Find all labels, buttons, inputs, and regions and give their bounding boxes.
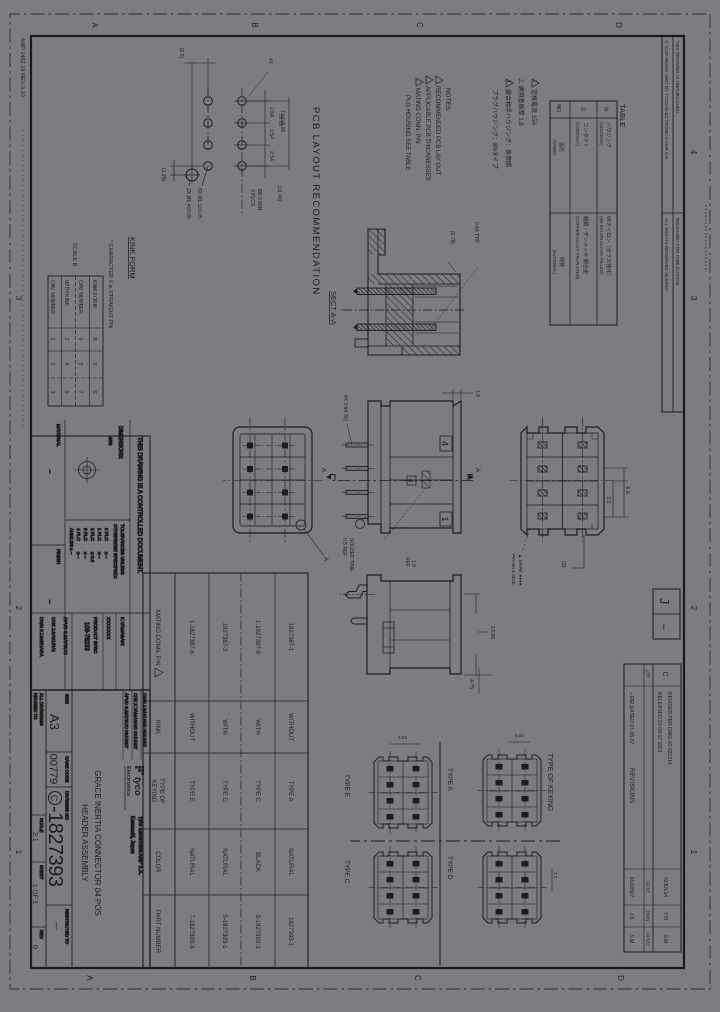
svg-text:TYPE D: TYPE D bbox=[221, 780, 227, 802]
svg-text:Ⓒ COPYRIGHT 2007 BY TYCO ELECT: Ⓒ COPYRIGHT 2007 BY TYCO ELECTRONICS AMP… bbox=[663, 40, 670, 161]
svg-text:6.0: 6.0 bbox=[624, 486, 630, 493]
svg-text:BLACK: BLACK bbox=[254, 852, 260, 872]
svg-text:①: ① bbox=[579, 106, 586, 111]
svg-text:MATERIAL: MATERIAL bbox=[56, 424, 61, 447]
svg-text:8X Ø1.1±0.05: 8X Ø1.1±0.05 bbox=[196, 188, 202, 219]
svg-text:2. 適用基板厚 1.6: 2. 適用基板厚 1.6 bbox=[517, 79, 525, 126]
svg-text:3: 3 bbox=[14, 296, 23, 301]
svg-text:材質: 材質 bbox=[558, 257, 565, 267]
svg-text:MATING CONN. P/N: MATING CONN. P/N bbox=[154, 610, 160, 666]
svg-text:APVD: APVD bbox=[646, 933, 651, 946]
svg-text:KEYING: KEYING bbox=[150, 780, 156, 803]
svg-text:* CHARACTER X is STRAIGHT PIN: * CHARACTER X is STRAIGHT PIN bbox=[107, 240, 113, 329]
svg-text:WITH: WITH bbox=[254, 719, 260, 734]
svg-text:RESTRICTED TO: RESTRICTED TO bbox=[65, 909, 70, 945]
svg-text:SECT A-A: SECT A-A bbox=[329, 291, 338, 325]
svg-text:7.62±0.05: 7.62±0.05 bbox=[279, 110, 285, 132]
svg-text:1: 1 bbox=[14, 850, 23, 855]
svg-text:HEADER ASSEMBLY: HEADER ASSEMBLY bbox=[80, 804, 89, 882]
svg-text:± –: ± – bbox=[83, 552, 88, 559]
svg-text:1: 1 bbox=[440, 516, 450, 521]
svg-text:108-78233: 108-78233 bbox=[83, 622, 89, 651]
svg-text:7-1827393-3: 7-1827393-3 bbox=[188, 914, 194, 949]
svg-text:–: – bbox=[658, 624, 670, 631]
svg-text:6: 6 bbox=[77, 338, 83, 341]
svg-text:5: 5 bbox=[77, 363, 83, 366]
svg-text:TYPE A: TYPE A bbox=[287, 780, 293, 801]
svg-text:OTHERWISE SPECIFIED:: OTHERWISE SPECIFIED: bbox=[113, 524, 118, 579]
svg-text:0.5 REF: 0.5 REF bbox=[341, 538, 347, 556]
svg-text:A: A bbox=[320, 468, 327, 473]
svg-text:± –: ± – bbox=[76, 552, 81, 559]
svg-text:SOLDER TINE: SOLDER TINE bbox=[348, 538, 354, 572]
svg-text:1-1827387-6: 1-1827387-6 bbox=[188, 620, 194, 655]
svg-text:1827387-3: 1827387-3 bbox=[221, 623, 227, 652]
svg-text:4X: 4X bbox=[267, 58, 273, 65]
svg-text:4: 4 bbox=[440, 441, 450, 446]
svg-text:—: — bbox=[52, 922, 61, 930]
svg-text:± –: ± – bbox=[97, 552, 102, 559]
svg-text:2.54: 2.54 bbox=[398, 735, 407, 740]
svg-text:TABLE: TABLE bbox=[618, 104, 627, 127]
svg-text:TYPE D: TYPE D bbox=[446, 856, 453, 880]
svg-text:PIN No.1 SIDE: PIN No.1 SIDE bbox=[511, 554, 516, 585]
svg-text:3 PLC: 3 PLC bbox=[83, 528, 88, 541]
svg-text:CAV. NUMBER: CAV. NUMBER bbox=[49, 280, 55, 314]
svg-text:tyco: tyco bbox=[133, 777, 143, 796]
svg-text:REVISED PER DWG-07-021214: REVISED PER DWG-07-021214 bbox=[666, 692, 672, 765]
svg-text:(COPPER ALLOY, TIN PLATED): (COPPER ALLOY, TIN PLATED) bbox=[575, 216, 580, 280]
svg-text:2:1: 2:1 bbox=[31, 832, 38, 842]
svg-text:2: 2 bbox=[63, 338, 69, 341]
svg-text:(6/6 NYLON GLASS–FILLED): (6/6 NYLON GLASS–FILLED) bbox=[599, 216, 604, 275]
svg-text:KINK FORM: KINK FORM bbox=[91, 280, 97, 308]
svg-text:5: 5 bbox=[63, 391, 69, 394]
svg-text:ANGLES ± –: ANGLES ± – bbox=[69, 528, 74, 555]
svg-text:A: A bbox=[474, 468, 481, 473]
svg-text:3-1827393-3: 3-1827393-3 bbox=[254, 914, 260, 949]
svg-text:RELEASED 07-08-07 1501: RELEASED 07-08-07 1501 bbox=[656, 692, 662, 753]
svg-text:(1.25): (1.25) bbox=[160, 168, 166, 181]
svg-text:1 PLC: 1 PLC bbox=[97, 528, 102, 541]
svg-text:Kawasaki, Japan: Kawasaki, Japan bbox=[129, 816, 135, 854]
svg-text:THIS DRAWING IS UNPUBLISHED.: THIS DRAWING IS UNPUBLISHED. bbox=[675, 40, 680, 115]
svg-text:2: 2 bbox=[689, 606, 698, 611]
svg-text:2X Ø1.4±0.05: 2X Ø1.4±0.05 bbox=[185, 188, 191, 219]
svg-text:コンタクト: コンタクト bbox=[582, 122, 590, 148]
svg-text:LTR: LTR bbox=[646, 670, 651, 679]
svg-text:ALL DRAWINGS: ALL DRAWINGS bbox=[39, 693, 44, 726]
svg-text:APVD S.MATSUO 06JUN07: APVD S.MATSUO 06JUN07 bbox=[124, 693, 129, 749]
svg-text:–: – bbox=[46, 600, 52, 604]
svg-text:B: B bbox=[91, 337, 97, 341]
svg-text:C: C bbox=[415, 22, 424, 28]
svg-text:A: A bbox=[85, 975, 94, 981]
svg-text:SCALE B: SCALE B bbox=[71, 243, 77, 267]
svg-text:PRODUCT SPEC: PRODUCT SPEC bbox=[93, 617, 98, 654]
svg-text:A3: A3 bbox=[47, 714, 62, 730]
svg-text:TOLERANCES UNLESS: TOLERANCES UNLESS bbox=[120, 524, 125, 575]
svg-text:S: S bbox=[91, 362, 97, 366]
svg-text:mm: mm bbox=[107, 437, 113, 445]
svg-text:5.08: 5.08 bbox=[515, 733, 524, 738]
svg-text:APPLICABLE PCB THICKNESSES: APPLICABLE PCB THICKNESSES bbox=[424, 86, 430, 181]
svg-text:TYPE C: TYPE C bbox=[254, 780, 260, 802]
svg-text:PART NUMBER: PART NUMBER bbox=[154, 910, 160, 954]
svg-text:WITH: WITH bbox=[221, 719, 227, 734]
svg-text:J.S: J.S bbox=[628, 912, 634, 920]
svg-text:S.M: S.M bbox=[628, 935, 634, 944]
svg-text:PCB LAYOUT RECOMMENDATION: PCB LAYOUT RECOMMENDATION bbox=[310, 107, 321, 296]
svg-text:1: 1 bbox=[531, 80, 537, 83]
svg-text:D: D bbox=[614, 22, 623, 28]
svg-text:⑩: ⑩ bbox=[602, 106, 609, 111]
svg-text:Ø0.9 MIN: Ø0.9 MIN bbox=[256, 189, 262, 211]
svg-text:AMP 1452-19 REV 3-10: AMP 1452-19 REV 3-10 bbox=[19, 38, 25, 97]
svg-text:FINISH: FINISH bbox=[56, 549, 61, 564]
svg-text:離銀・チンメッキ 銀合金: 離銀・チンメッキ 銀合金 bbox=[582, 216, 590, 275]
svg-text:2.54: 2.54 bbox=[268, 107, 274, 117]
svg-text:嵌合相手ハウジング：表参照: 嵌合相手ハウジング：表参照 bbox=[504, 89, 512, 167]
svg-text:MATING CONN. P/N: MATING CONN. P/N bbox=[414, 88, 420, 144]
svg-text:REVISED TO: REVISED TO bbox=[33, 693, 38, 720]
svg-text:DWN K.UMEHARA: DWN K.UMEHARA bbox=[39, 617, 44, 657]
svg-text:NOTES:: NOTES: bbox=[444, 88, 451, 112]
svg-text:TYPE OF KEYING: TYPE OF KEYING bbox=[546, 753, 553, 811]
svg-text:-1827393: -1827393 bbox=[44, 806, 66, 887]
svg-text:7.1: 7.1 bbox=[553, 872, 558, 879]
svg-text:ハウジング: ハウジング bbox=[605, 122, 613, 148]
svg-text:S.M: S.M bbox=[662, 935, 668, 944]
svg-text:7: 7 bbox=[77, 391, 83, 394]
svg-text:(2): (2) bbox=[560, 561, 566, 568]
svg-text:APVD S.MATSUO: APVD S.MATSUO bbox=[63, 617, 68, 655]
svg-text:5-1827393-1: 5-1827393-1 bbox=[221, 914, 227, 949]
svg-text:NO.: NO. bbox=[555, 105, 561, 114]
svg-text:プラグハウジング：8Nタイプ: プラグハウジング：8Nタイプ bbox=[491, 89, 499, 169]
svg-text:4X 0.64 SQ: 4X 0.64 SQ bbox=[342, 395, 348, 421]
svg-text:NATURAL: NATURAL bbox=[188, 848, 194, 876]
svg-text:WITH KINK: WITH KINK bbox=[63, 280, 69, 306]
svg-text:1-1827387-0: 1-1827387-0 bbox=[254, 620, 260, 655]
svg-text:K.YAMASAKI: K.YAMASAKI bbox=[119, 617, 125, 646]
svg-text:NATURAL: NATURAL bbox=[221, 848, 227, 876]
svg-text:ALL RIGHTS RESERVED 06JUN07: ALL RIGHTS RESERVED 06JUN07 bbox=[664, 218, 669, 292]
svg-text:THIS DRAWING IS A CONTROLLED D: THIS DRAWING IS A CONTROLLED DOCUMENT. bbox=[136, 437, 142, 574]
svg-text:(NAME): (NAME) bbox=[552, 139, 557, 155]
svg-text:S: S bbox=[91, 390, 97, 394]
svg-text:TYPE C: TYPE C bbox=[343, 860, 350, 884]
svg-text:TYPE E: TYPE E bbox=[188, 780, 194, 801]
svg-text:KINK: KINK bbox=[154, 720, 160, 734]
svg-text:品名: 品名 bbox=[558, 142, 565, 152]
svg-text:C: C bbox=[661, 671, 668, 676]
svg-text:B: B bbox=[248, 975, 257, 980]
svg-text:REV: REV bbox=[39, 930, 44, 939]
svg-text:1827387-1: 1827387-1 bbox=[287, 623, 293, 652]
svg-text:0: 0 bbox=[31, 945, 38, 949]
svg-text:(HOUSING): (HOUSING) bbox=[599, 122, 604, 146]
svg-text:Y.O: Y.O bbox=[662, 912, 668, 920]
svg-text:SIZE: SIZE bbox=[65, 694, 70, 704]
svg-text:2.54: 2.54 bbox=[268, 151, 274, 161]
svg-text:2: 2 bbox=[14, 606, 23, 611]
svg-text:A: A bbox=[322, 557, 328, 561]
svg-text:SCALE: SCALE bbox=[39, 818, 44, 832]
svg-text:REVISIONS: REVISIONS bbox=[628, 768, 635, 804]
svg-text:– RELEASED 07-08-07: – RELEASED 07-08-07 bbox=[628, 692, 634, 744]
svg-text:定格電流 15A: 定格電流 15A bbox=[530, 89, 538, 125]
svg-text:WITHOUT: WITHOUT bbox=[287, 713, 293, 741]
svg-text:1: 1 bbox=[689, 850, 698, 855]
svg-text:± –: ± – bbox=[104, 552, 109, 559]
svg-text:RECOMMENDED PCB LAY OUT: RECOMMENDED PCB LAY OUT bbox=[434, 86, 440, 175]
svg-text:2.54: 2.54 bbox=[268, 129, 274, 139]
svg-text:1.8: 1.8 bbox=[410, 560, 416, 567]
svg-text:D: D bbox=[616, 975, 625, 981]
svg-text:RELEASED FOR PUBLICATION: RELEASED FOR PUBLICATION bbox=[675, 218, 680, 285]
svg-text:REF: REF bbox=[404, 557, 410, 567]
svg-text:(CONTACT): (CONTACT) bbox=[575, 122, 580, 146]
svg-text:4: 4 bbox=[689, 150, 698, 155]
svg-text:TYPE E: TYPE E bbox=[343, 774, 350, 798]
svg-text:▲ MARK ●●●●: ▲ MARK ●●●● bbox=[518, 554, 523, 586]
svg-text:66ナイロン（ガラス強化）: 66ナイロン（ガラス強化） bbox=[605, 216, 613, 279]
svg-text:Tyco Electronics AMP K.K.: Tyco Electronics AMP K.K. bbox=[137, 816, 143, 875]
svg-text:–: – bbox=[46, 470, 52, 474]
svg-text:XXXXXXX: XXXXXXX bbox=[105, 617, 111, 640]
svg-text:1: 1 bbox=[49, 338, 55, 341]
svg-text:CAV. NUMBER: CAV. NUMBER bbox=[77, 280, 83, 314]
svg-text:5: 5 bbox=[63, 363, 69, 366]
svg-text:TYPE A: TYPE A bbox=[446, 768, 453, 791]
svg-text:TYPE OF: TYPE OF bbox=[158, 778, 164, 804]
svg-text:(2.5): (2.5) bbox=[178, 48, 184, 59]
svg-text:3: 3 bbox=[505, 80, 511, 83]
svg-text:4.75: 4.75 bbox=[468, 679, 474, 689]
svg-text:1827393-1: 1827393-1 bbox=[287, 917, 293, 946]
svg-text:(11.43): (11.43) bbox=[276, 186, 282, 202]
svg-text:3: 3 bbox=[49, 391, 55, 394]
svg-text:Electronics: Electronics bbox=[125, 766, 131, 796]
svg-text:2.5: 2.5 bbox=[605, 496, 611, 503]
svg-text:02JUL14: 02JUL14 bbox=[662, 877, 668, 897]
svg-text:PLG HOUSING SEE TABLE: PLG HOUSING SEE TABLE bbox=[404, 95, 410, 170]
svg-text:06JUN07: 06JUN07 bbox=[628, 877, 634, 898]
svg-text:3: 3 bbox=[689, 296, 698, 301]
svg-text:DWN: DWN bbox=[646, 911, 651, 922]
svg-text:CHK K.YAMASAKI 06JUN07: CHK K.YAMASAKI 06JUN07 bbox=[133, 693, 138, 750]
svg-text:CAGE CODE: CAGE CODE bbox=[65, 756, 70, 782]
svg-text:SHEET: SHEET bbox=[39, 865, 44, 880]
svg-text:KINK FORM: KINK FORM bbox=[128, 237, 137, 279]
svg-text:A: A bbox=[90, 22, 99, 28]
svg-text:± 0.3: ± 0.3 bbox=[90, 552, 95, 563]
svg-text:B: B bbox=[250, 22, 259, 27]
svg-text:NATURAL: NATURAL bbox=[287, 848, 293, 876]
svg-text:COLOR: COLOR bbox=[154, 851, 160, 873]
svg-text:2 PLC: 2 PLC bbox=[90, 528, 95, 541]
svg-text:C: C bbox=[413, 975, 422, 981]
svg-text:J: J bbox=[657, 598, 672, 605]
svg-text:1 OF 1: 1 OF 1 bbox=[31, 884, 38, 904]
svg-text:(MATERIAL): (MATERIAL) bbox=[552, 250, 557, 275]
svg-text:C: C bbox=[49, 795, 59, 802]
svg-text:CHK J.SAKURAI: CHK J.SAKURAI bbox=[51, 617, 56, 652]
svg-text:4 PLC: 4 PLC bbox=[76, 528, 81, 541]
svg-text:13.85: 13.85 bbox=[489, 626, 495, 639]
svg-text:00779: 00779 bbox=[47, 754, 59, 785]
svg-text:WITHOUT: WITHOUT bbox=[188, 713, 194, 741]
svg-text:0.64 TYP: 0.64 TYP bbox=[473, 222, 479, 243]
svg-text:(0.78): (0.78) bbox=[449, 231, 455, 244]
svg-text:0 PLC: 0 PLC bbox=[104, 528, 109, 541]
svg-text:1.8: 1.8 bbox=[474, 390, 480, 397]
svg-text:2: 2 bbox=[49, 363, 55, 366]
svg-text:DWN J.SAKURAI 06JUN07: DWN J.SAKURAI 06JUN07 bbox=[142, 693, 147, 747]
svg-text:DIMENSIONS:: DIMENSIONS: bbox=[117, 426, 123, 459]
svg-text:GRACE INERTIA CONNECTOR 04 POS: GRACE INERTIA CONNECTOR 04 POS bbox=[93, 770, 102, 916]
svg-text:3 PLCS: 3 PLCS bbox=[249, 189, 255, 207]
svg-text:DATE: DATE bbox=[646, 881, 651, 893]
